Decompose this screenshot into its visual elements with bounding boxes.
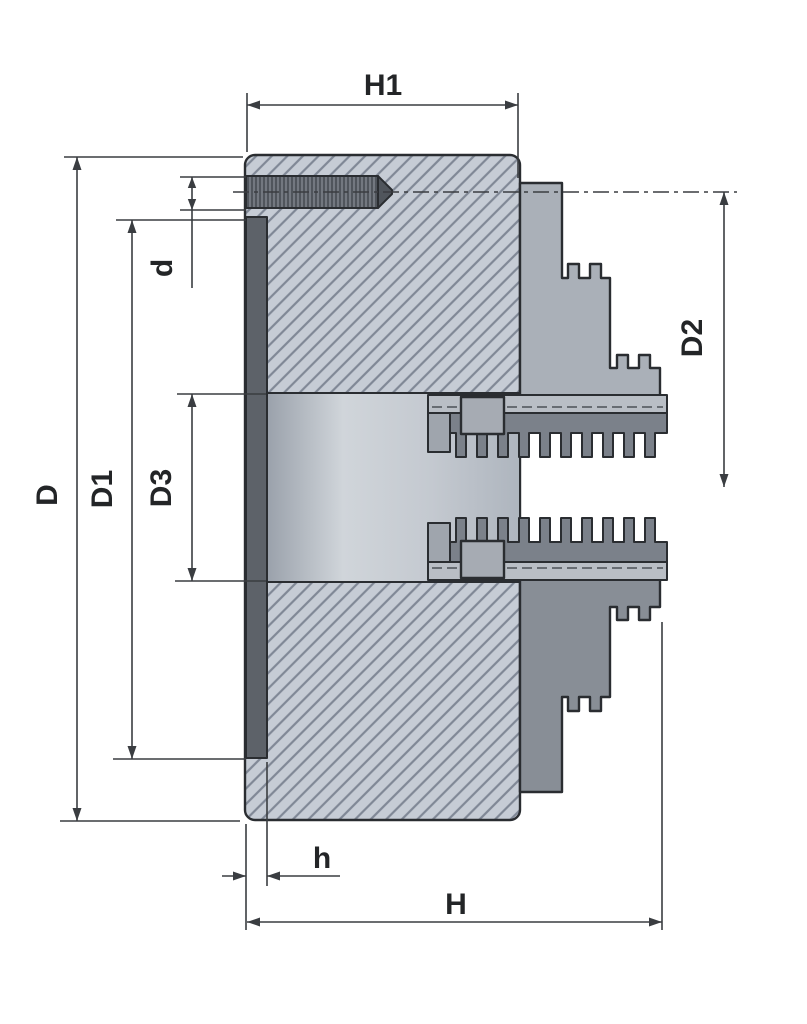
dim-d2: D2 — [676, 192, 729, 487]
top-guide-bar — [428, 413, 450, 452]
top-jaw — [520, 183, 660, 398]
dim-D-arrow-bottom — [73, 808, 82, 821]
chuck-cross-section-drawing: H1 D D1 D3 d D2 — [0, 0, 807, 1024]
dim-D-arrow-top — [73, 157, 82, 170]
dim-H-arrow-left — [247, 918, 260, 927]
dim-h-arrow-right — [267, 872, 280, 881]
label-d: d — [146, 259, 179, 277]
dim-d1-arrow-top — [128, 220, 137, 233]
dim-h1-arrow-left — [247, 101, 260, 110]
dim-d1-arrow-bottom — [128, 746, 137, 759]
bottom-jaw — [520, 577, 660, 792]
bottom-guide-bar — [428, 523, 450, 562]
top-jaw-slide — [428, 395, 667, 457]
dim-d3-arrow-top — [188, 394, 197, 407]
dim-d2-arrow-bottom — [720, 474, 729, 487]
dim-h1-arrow-right — [505, 101, 518, 110]
dim-d2-arrow-top — [720, 192, 729, 205]
bottom-scroll-block — [461, 541, 504, 578]
label-D: D — [31, 484, 64, 506]
label-h: h — [313, 842, 331, 875]
label-d1: D1 — [86, 470, 119, 508]
dim-d: d — [146, 177, 246, 288]
dim-H-arrow-right — [649, 918, 662, 927]
label-h1: H1 — [364, 69, 402, 102]
dim-d3-arrow-bottom — [188, 568, 197, 581]
bottom-jaw-slide — [428, 518, 667, 580]
label-H: H — [445, 888, 467, 921]
label-d3: D3 — [145, 469, 178, 507]
dim-D: D — [31, 157, 243, 821]
face-plate-strip — [246, 217, 267, 758]
dim-d-arrow-top — [188, 177, 196, 188]
dim-d-arrow-bottom — [188, 199, 196, 210]
dim-h-arrow-left — [233, 872, 246, 881]
drawing-page: H1 D D1 D3 d D2 — [0, 0, 807, 1024]
label-d2: D2 — [676, 319, 709, 357]
top-scroll-block — [461, 397, 504, 434]
